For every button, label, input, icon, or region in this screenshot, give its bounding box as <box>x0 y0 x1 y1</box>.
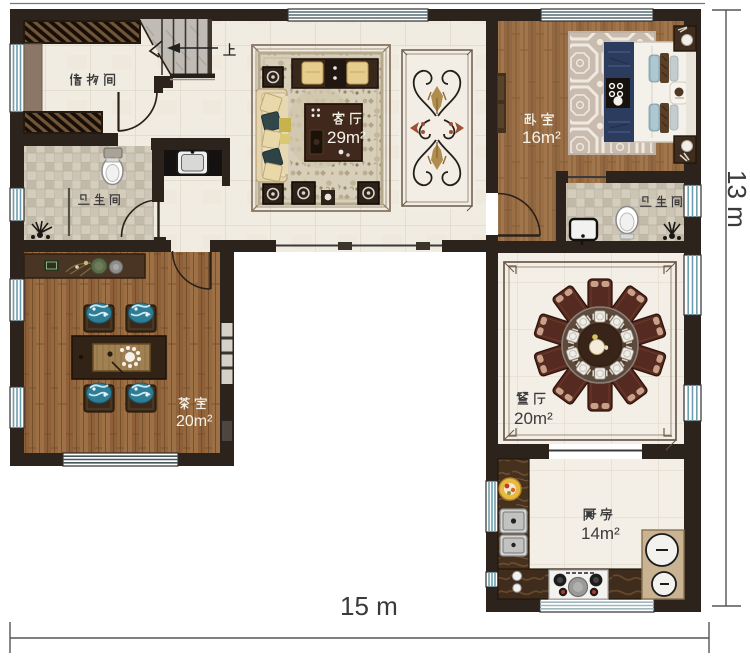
svg-text:14m²: 14m² <box>581 524 620 543</box>
svg-text:16m²: 16m² <box>522 128 561 147</box>
svg-text:20m²: 20m² <box>514 409 553 428</box>
svg-text:13 m: 13 m <box>722 170 750 228</box>
svg-text:20m²: 20m² <box>176 413 213 430</box>
svg-text:15 m: 15 m <box>340 591 398 621</box>
svg-text:29m²: 29m² <box>327 128 366 147</box>
